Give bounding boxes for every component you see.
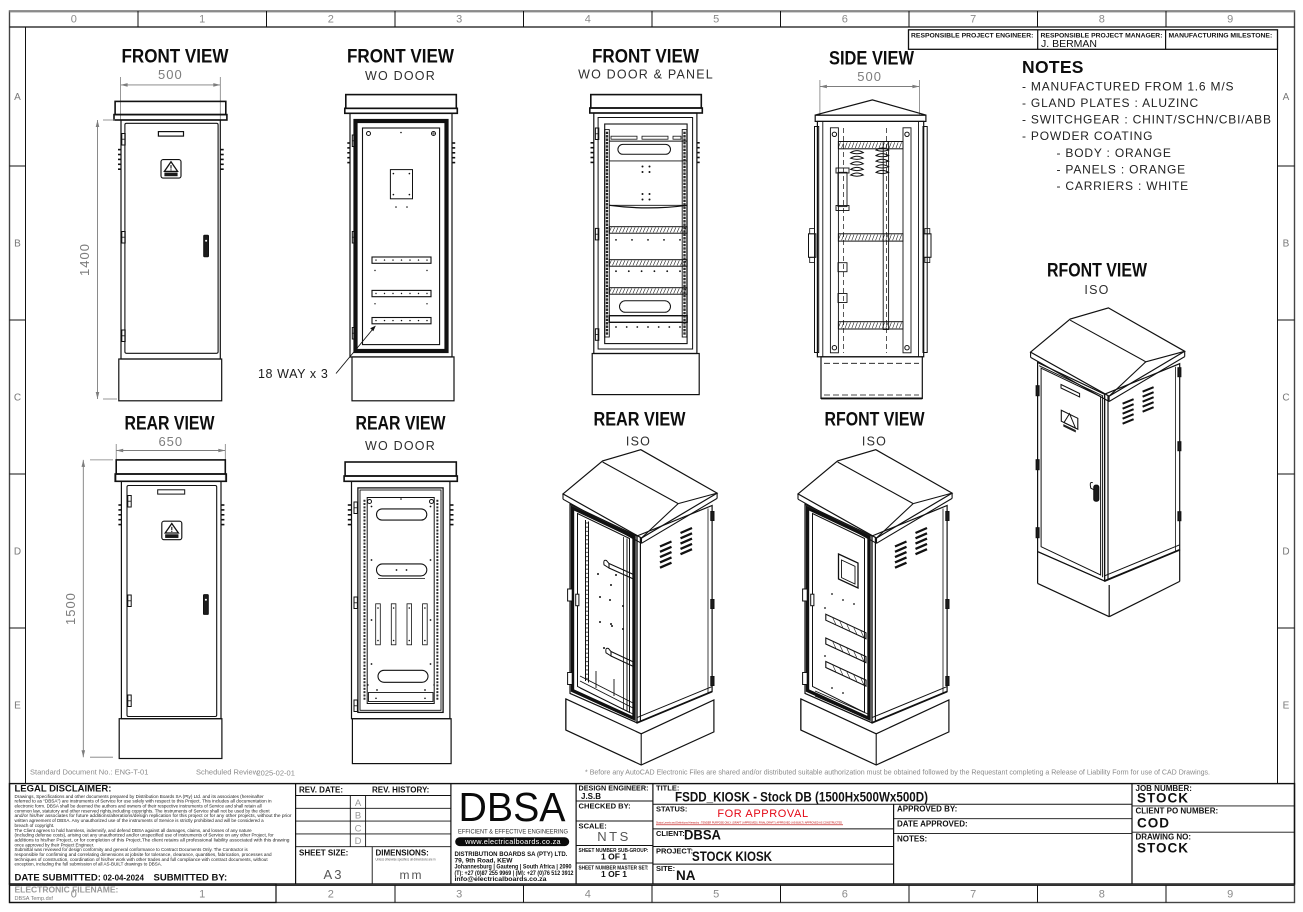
- svg-text:SUBMITTED BY:: SUBMITTED BY:: [154, 873, 228, 884]
- svg-text:DBSA Temp.dxf: DBSA Temp.dxf: [15, 896, 54, 902]
- svg-text:NA: NA: [676, 868, 696, 883]
- svg-text:- MANUFACTURED FROM 1.6 M/S: - MANUFACTURED FROM 1.6 M/S: [1022, 80, 1234, 94]
- svg-text:1: 1: [199, 14, 205, 26]
- svg-text:REAR VIEW: REAR VIEW: [594, 410, 686, 431]
- svg-text:ISO: ISO: [626, 435, 651, 449]
- svg-text:650: 650: [158, 434, 183, 449]
- svg-text:info@electricalboards.co.za: info@electricalboards.co.za: [455, 876, 547, 883]
- svg-text:Standard Document No.: ENG-T-0: Standard Document No.: ENG-T-01: [30, 768, 148, 777]
- svg-text:2: 2: [328, 14, 334, 26]
- svg-text:1: 1: [199, 889, 205, 901]
- svg-text:MANUFACTURING MILESTONE:: MANUFACTURING MILESTONE:: [1169, 33, 1273, 40]
- svg-text:RFONT VIEW: RFONT VIEW: [1047, 261, 1147, 282]
- svg-text:A3: A3: [324, 867, 344, 882]
- svg-text:1 OF 1: 1 OF 1: [601, 869, 627, 879]
- svg-text:- GLAND PLATES : ALUZINC: - GLAND PLATES : ALUZINC: [1022, 96, 1199, 110]
- svg-text:6: 6: [842, 889, 848, 901]
- svg-text:4: 4: [585, 14, 591, 26]
- svg-text:- PANELS : ORANGE: - PANELS : ORANGE: [1057, 162, 1186, 176]
- svg-text:- SWITCHGEAR : CHINT/SCHN/CBI/: - SWITCHGEAR : CHINT/SCHN/CBI/ABB: [1022, 113, 1272, 127]
- svg-text:DIMENSIONS:: DIMENSIONS:: [376, 849, 429, 858]
- svg-text:1500: 1500: [63, 592, 78, 625]
- svg-text:www.electricalboards.co.za: www.electricalboards.co.za: [464, 837, 561, 846]
- svg-text:02-04-2024: 02-04-2024: [103, 874, 144, 883]
- svg-text:D: D: [355, 836, 362, 847]
- svg-text:STATUS:: STATUS:: [656, 804, 687, 813]
- svg-text:EFFICIENT & EFFECTIVE ENGINEER: EFFICIENT & EFFECTIVE ENGINEERING: [458, 829, 568, 836]
- svg-text:FRONT VIEW: FRONT VIEW: [122, 47, 229, 68]
- svg-text:REV. HISTORY:: REV. HISTORY:: [372, 785, 429, 794]
- svg-text:STOCK: STOCK: [1137, 841, 1189, 856]
- svg-text:STOCK KIOSK: STOCK KIOSK: [692, 849, 772, 864]
- svg-text:E: E: [14, 701, 21, 712]
- svg-text:C: C: [355, 823, 362, 834]
- svg-text:- POWDER COATING: - POWDER COATING: [1022, 129, 1153, 143]
- svg-text:0: 0: [71, 14, 77, 26]
- svg-text:CLIENT:: CLIENT:: [656, 829, 685, 838]
- svg-text:APPROVED BY:: APPROVED BY:: [897, 805, 957, 814]
- svg-text:D: D: [1282, 547, 1289, 558]
- svg-text:DATE APPROVED:: DATE APPROVED:: [897, 819, 968, 828]
- svg-text:6: 6: [842, 14, 848, 26]
- svg-text:RFONT VIEW: RFONT VIEW: [825, 410, 925, 431]
- svg-text:1 OF 1: 1 OF 1: [601, 852, 627, 862]
- svg-text:FRONT VIEW: FRONT VIEW: [592, 47, 699, 68]
- svg-text:- CARRIERS : WHITE: - CARRIERS : WHITE: [1057, 179, 1189, 193]
- svg-text:CHECKED BY:: CHECKED BY:: [579, 802, 631, 811]
- svg-text:Unless otherwise specified, al: Unless otherwise specified, all dimensio…: [376, 858, 436, 862]
- svg-text:NTS: NTS: [597, 829, 631, 844]
- svg-text:7: 7: [970, 889, 976, 901]
- svg-text:3: 3: [456, 14, 462, 26]
- svg-text:J.S.B: J.S.B: [581, 792, 601, 801]
- svg-text:C: C: [14, 393, 21, 404]
- svg-text:STOCK: STOCK: [1137, 791, 1189, 806]
- svg-text:18 WAY x 3: 18 WAY x 3: [258, 367, 328, 381]
- svg-text:ISO: ISO: [1084, 283, 1109, 297]
- svg-text:5: 5: [713, 14, 719, 26]
- svg-text:SITE:: SITE:: [656, 864, 675, 873]
- svg-text:E: E: [1283, 701, 1290, 712]
- svg-text:A: A: [14, 92, 21, 103]
- svg-text:7: 7: [970, 14, 976, 26]
- svg-text:1400: 1400: [77, 243, 92, 276]
- svg-text:500: 500: [857, 69, 882, 84]
- svg-text:FOR APPROVAL: FOR APPROVAL: [717, 808, 808, 820]
- svg-text:2: 2: [328, 889, 334, 901]
- svg-text:9: 9: [1227, 14, 1233, 26]
- svg-text:Scheduled Review:: Scheduled Review:: [196, 768, 260, 777]
- svg-text:DBSA: DBSA: [684, 828, 721, 843]
- svg-text:DATE SUBMITTED:: DATE SUBMITTED:: [15, 873, 101, 884]
- svg-text:9: 9: [1227, 889, 1233, 901]
- svg-text:8: 8: [1099, 889, 1105, 901]
- svg-text:A: A: [1283, 92, 1290, 103]
- svg-text:B: B: [14, 239, 21, 250]
- svg-text:4: 4: [585, 889, 591, 901]
- svg-text:500: 500: [158, 67, 183, 82]
- svg-text:8: 8: [1099, 14, 1105, 26]
- svg-text:WO DOOR: WO DOOR: [365, 69, 436, 83]
- svg-text:J. BERMAN: J. BERMAN: [1041, 38, 1097, 50]
- svg-text:WO DOOR & PANEL: WO DOOR & PANEL: [578, 68, 714, 82]
- svg-text:FRONT VIEW: FRONT VIEW: [347, 47, 454, 68]
- svg-text:DBSA: DBSA: [459, 784, 567, 830]
- svg-text:5: 5: [713, 889, 719, 901]
- svg-text:mm: mm: [400, 868, 424, 882]
- svg-text:FSDD_KIOSK - Stock DB (1500Hx5: FSDD_KIOSK - Stock DB (1500Hx500Wx500D): [675, 789, 928, 805]
- svg-text:ELECTRONIC FILENAME:: ELECTRONIC FILENAME:: [15, 885, 119, 895]
- svg-text:NOTES:: NOTES:: [897, 834, 927, 843]
- svg-text:Status Levels and Definitions: Status Levels and Definitions Hierarchy …: [656, 821, 843, 825]
- svg-text:C: C: [1282, 393, 1289, 404]
- svg-text:NOTES: NOTES: [1022, 57, 1084, 77]
- svg-text:COD: COD: [1137, 816, 1170, 831]
- svg-text:ISO: ISO: [862, 435, 887, 449]
- svg-text:SHEET SIZE:: SHEET SIZE:: [299, 849, 348, 858]
- svg-text:2025-02-01: 2025-02-01: [257, 769, 295, 778]
- svg-text:LEGAL DISCLAIMER:: LEGAL DISCLAIMER:: [15, 784, 112, 795]
- svg-text:B: B: [1283, 239, 1290, 250]
- svg-text:exception, including the full: exception, including the full submission…: [15, 862, 163, 868]
- svg-text:B: B: [355, 811, 361, 822]
- svg-text:3: 3: [456, 889, 462, 901]
- svg-text:REAR VIEW: REAR VIEW: [125, 414, 215, 435]
- svg-text:SIDE VIEW: SIDE VIEW: [829, 49, 914, 70]
- svg-text:* Before any AutoCAD Electron: * Before any AutoCAD Electronic Files ar…: [585, 768, 1210, 777]
- svg-text:CLIENT PO NUMBER:: CLIENT PO NUMBER:: [1136, 806, 1219, 815]
- svg-text:PROJECT:: PROJECT:: [656, 847, 693, 856]
- svg-text:A: A: [355, 798, 362, 809]
- svg-text:REV. DATE:: REV. DATE:: [299, 785, 343, 794]
- svg-text:D: D: [14, 547, 21, 558]
- svg-text:- BODY : ORANGE: - BODY : ORANGE: [1057, 146, 1172, 160]
- svg-text:WO DOOR: WO DOOR: [365, 439, 436, 453]
- svg-text:RESPONSIBLE PROJECT ENGINEER:: RESPONSIBLE PROJECT ENGINEER:: [911, 33, 1033, 40]
- svg-text:REAR VIEW: REAR VIEW: [356, 414, 446, 435]
